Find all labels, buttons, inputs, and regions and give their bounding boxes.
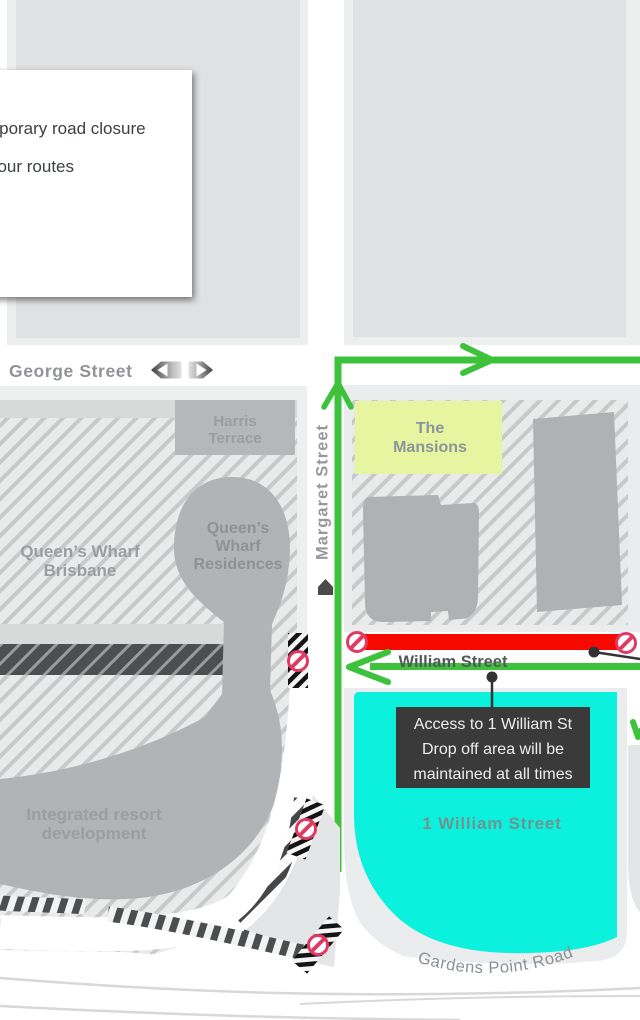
svg-text:Mansions: Mansions bbox=[393, 439, 467, 456]
svg-text:Wharf: Wharf bbox=[215, 538, 261, 555]
svg-text:Temporary road closure: Temporary road closure bbox=[0, 119, 146, 138]
svg-text:Drop off area will be: Drop off area will be bbox=[422, 741, 564, 758]
svg-text:Residences: Residences bbox=[194, 556, 283, 573]
svg-text:development: development bbox=[42, 824, 147, 843]
svg-text:Queen’s Wharf: Queen’s Wharf bbox=[20, 542, 140, 561]
svg-text:Detour routes: Detour routes bbox=[0, 157, 74, 176]
svg-text:Margaret Street: Margaret Street bbox=[314, 424, 332, 560]
svg-text:Integrated resort: Integrated resort bbox=[26, 805, 161, 824]
svg-text:Queen’s: Queen’s bbox=[207, 520, 270, 537]
svg-text:Access to 1 William St: Access to 1 William St bbox=[414, 716, 573, 733]
svg-text:William Street: William Street bbox=[399, 653, 508, 671]
svg-text:1 William Street: 1 William Street bbox=[422, 814, 561, 833]
svg-text:Terrace: Terrace bbox=[208, 430, 261, 447]
svg-text:George Street: George Street bbox=[9, 361, 133, 381]
svg-text:Harris: Harris bbox=[213, 413, 256, 430]
svg-text:Brisbane: Brisbane bbox=[44, 561, 117, 580]
svg-text:The: The bbox=[416, 420, 445, 437]
svg-text:maintained at all times: maintained at all times bbox=[413, 766, 572, 783]
